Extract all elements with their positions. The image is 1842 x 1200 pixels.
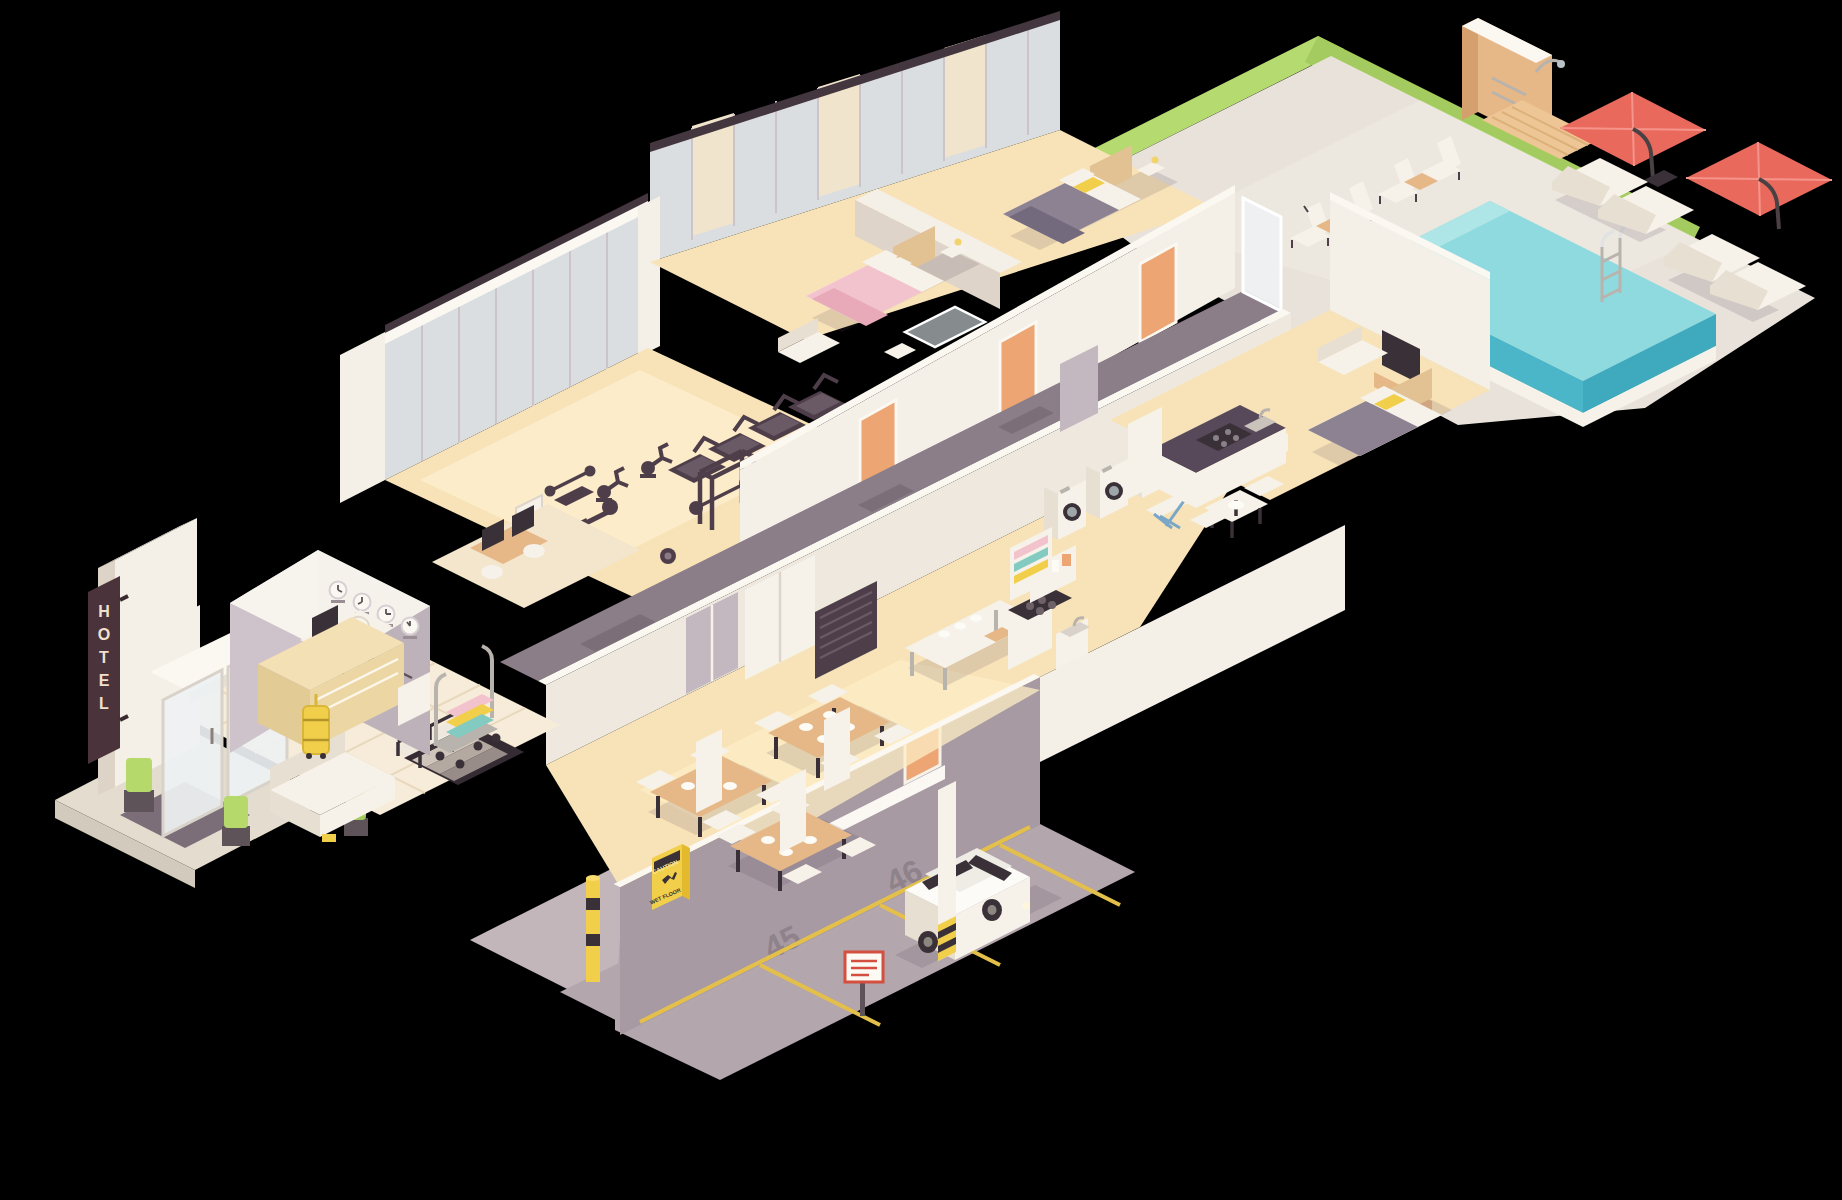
- gym-end-wall: [340, 332, 385, 503]
- sign-letter: T: [99, 649, 109, 666]
- headlight-icon: [1023, 903, 1030, 910]
- lamp-icon: [1152, 157, 1159, 164]
- pool-access-door: [1243, 198, 1281, 311]
- garage-pillar: [938, 781, 956, 961]
- patio-umbrella-icon: [1686, 142, 1832, 229]
- sign-letter: H: [98, 603, 110, 620]
- toilet: [884, 343, 916, 359]
- sign-letter: L: [99, 695, 109, 712]
- sign-letter: O: [98, 626, 110, 643]
- sign-letter: E: [99, 672, 110, 689]
- lamp-icon: [955, 239, 962, 246]
- potted-plant-icon: [222, 796, 250, 846]
- potted-plant-icon: [124, 758, 154, 812]
- hotel-cutaway-illustration: 45 46: [0, 0, 1842, 1200]
- wing-jog-wall: [638, 196, 660, 357]
- privacy-screen: [696, 729, 722, 813]
- hazard-bollard: [586, 875, 600, 982]
- magazine: [322, 834, 336, 842]
- isometric-scene: 45 46: [0, 0, 1842, 1200]
- shower-head-icon: [1557, 60, 1565, 68]
- privacy-screen: [824, 707, 850, 791]
- privacy-screen: [780, 769, 806, 853]
